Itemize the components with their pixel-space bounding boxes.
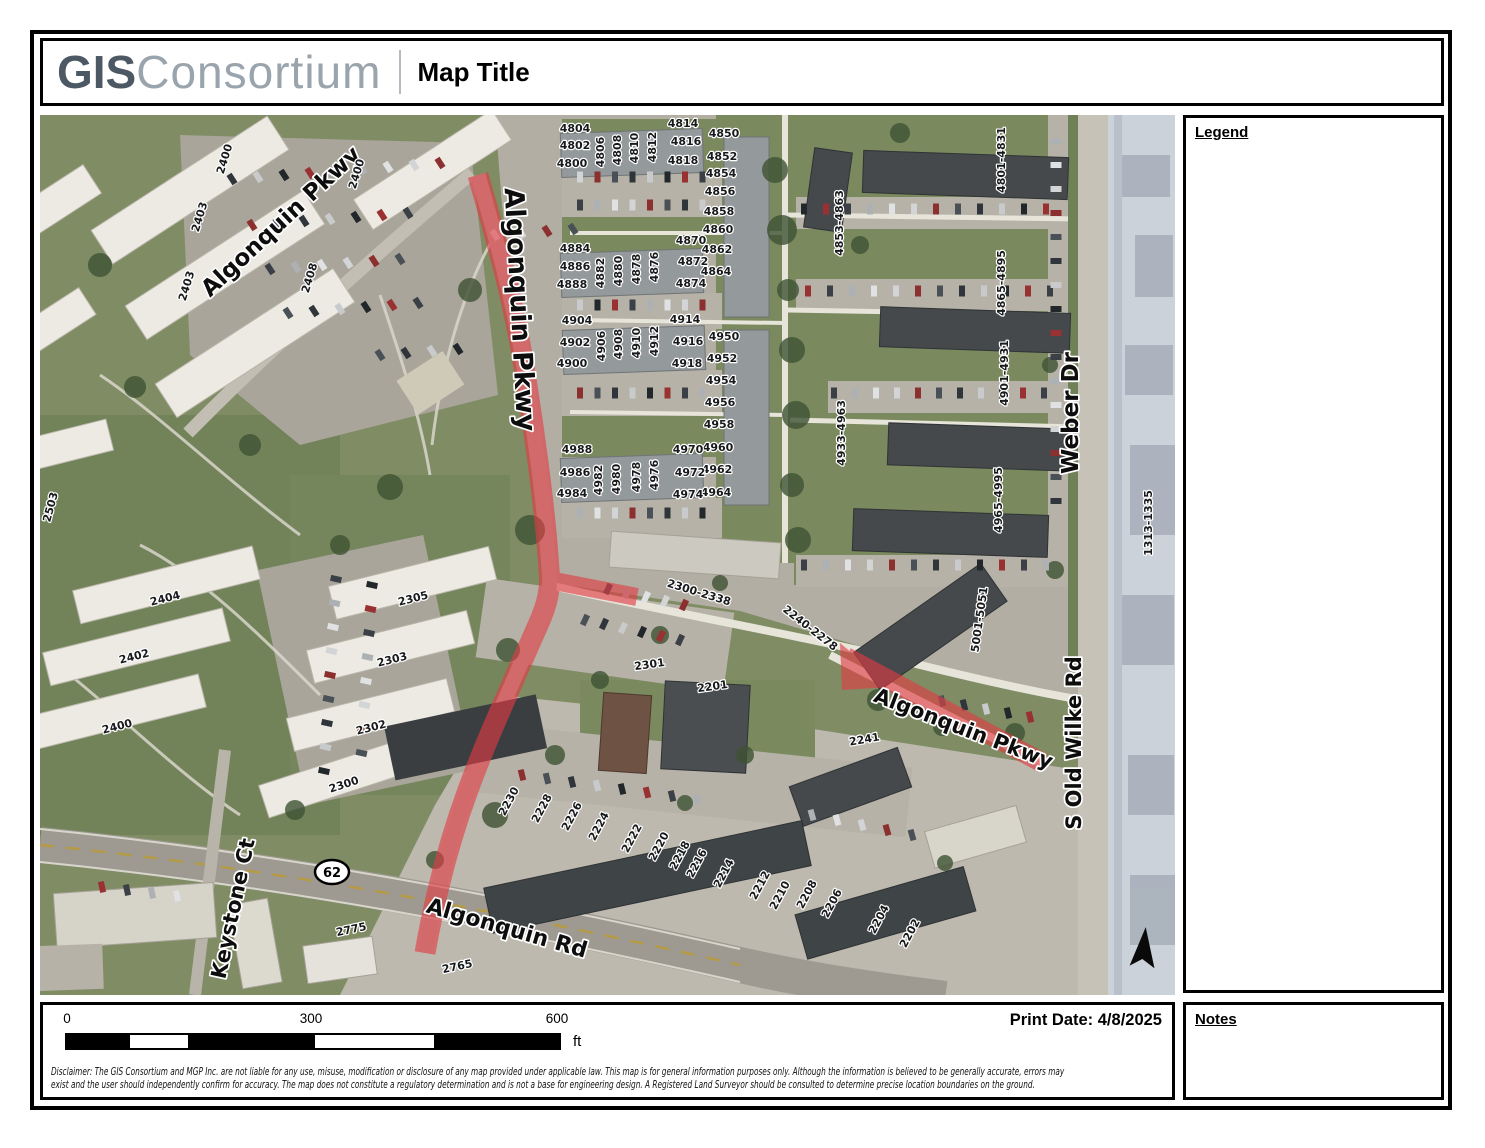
gis-consortium-logo: GISConsortium <box>57 45 381 99</box>
svg-text:4960: 4960 <box>703 441 734 454</box>
page-title: Map Title <box>417 57 529 88</box>
svg-text:4856: 4856 <box>705 185 736 198</box>
route-62-shield: 62 <box>315 860 349 884</box>
scale-bar <box>65 1033 561 1050</box>
svg-text:4988: 4988 <box>562 443 593 456</box>
svg-text:Weber Dr: Weber Dr <box>1058 351 1084 474</box>
svg-text:4962: 4962 <box>702 463 733 476</box>
svg-text:4816: 4816 <box>671 135 702 148</box>
svg-text:4812: 4812 <box>646 132 659 163</box>
scale-tick-300: 300 <box>289 1011 333 1026</box>
svg-text:4956: 4956 <box>705 396 736 409</box>
header-divider <box>399 50 401 94</box>
svg-text:4965-4995: 4965-4995 <box>992 467 1005 533</box>
svg-text:S Old Wilke Rd: S Old Wilke Rd <box>1062 656 1086 830</box>
notes-title: Notes <box>1195 1011 1237 1028</box>
disclaimer-line-1: Disclaimer: The GIS Consortium and MGP I… <box>51 1066 1064 1079</box>
scale-tick-0: 0 <box>45 1011 89 1026</box>
svg-text:4882: 4882 <box>594 258 607 289</box>
legend-title: Legend <box>1195 124 1248 141</box>
svg-text:4878: 4878 <box>630 254 643 285</box>
svg-text:4972: 4972 <box>675 466 706 479</box>
legend-panel: Legend <box>1183 115 1444 993</box>
svg-text:4958: 4958 <box>704 418 735 431</box>
scale-unit: ft <box>573 1033 581 1050</box>
svg-text:4888: 4888 <box>557 278 588 291</box>
svg-text:4978: 4978 <box>630 462 643 493</box>
svg-text:4904: 4904 <box>562 314 593 327</box>
svg-text:4914: 4914 <box>670 313 701 326</box>
svg-text:4984: 4984 <box>557 487 588 500</box>
svg-text:4870: 4870 <box>676 234 707 247</box>
svg-text:4964: 4964 <box>701 486 732 499</box>
svg-text:4801-4831: 4801-4831 <box>995 127 1008 193</box>
svg-text:4952: 4952 <box>707 352 738 365</box>
weber-road <box>1078 115 1108 995</box>
svg-text:4858: 4858 <box>704 205 735 218</box>
svg-text:4818: 4818 <box>668 154 699 167</box>
svg-text:4976: 4976 <box>648 459 661 490</box>
map-viewport: 62 Algonquin PkwyAlgonquin PkwyWeber DrS… <box>40 115 1175 995</box>
svg-text:4950: 4950 <box>709 330 740 343</box>
svg-text:4865-4895: 4865-4895 <box>995 250 1008 316</box>
logo-bold-text: GIS <box>57 45 136 99</box>
svg-text:4876: 4876 <box>648 251 661 282</box>
svg-text:4906: 4906 <box>595 330 608 361</box>
svg-text:4970: 4970 <box>673 443 704 456</box>
svg-text:4886: 4886 <box>560 260 591 273</box>
scale-tick-600: 600 <box>535 1011 579 1026</box>
svg-text:4916: 4916 <box>673 335 704 348</box>
svg-text:4808: 4808 <box>611 135 624 166</box>
svg-text:4910: 4910 <box>630 327 643 358</box>
svg-text:4974: 4974 <box>673 488 704 501</box>
svg-text:4854: 4854 <box>706 167 737 180</box>
svg-text:4800: 4800 <box>557 157 588 170</box>
aerial-map-image: 62 Algonquin PkwyAlgonquin PkwyWeber DrS… <box>40 115 1175 995</box>
header-bar: GISConsortium Map Title <box>40 38 1444 106</box>
svg-text:62: 62 <box>323 866 341 881</box>
svg-text:4954: 4954 <box>706 374 737 387</box>
svg-text:4912: 4912 <box>648 326 661 357</box>
svg-text:4804: 4804 <box>560 122 591 135</box>
svg-text:4874: 4874 <box>676 277 707 290</box>
footer-panel: 0 300 600 ft Print Date: 4/8/2025 Discla… <box>40 1002 1175 1100</box>
notes-panel: Notes <box>1183 1002 1444 1100</box>
svg-text:4860: 4860 <box>703 223 734 236</box>
svg-text:4852: 4852 <box>707 150 738 163</box>
logo-light-text: Consortium <box>136 45 381 99</box>
svg-text:4872: 4872 <box>678 255 709 268</box>
svg-text:4901-4931: 4901-4931 <box>998 340 1011 406</box>
map-sheet: GISConsortium Map Title <box>0 0 1485 1148</box>
disclaimer-line-2: exist and the user should independently … <box>51 1079 1064 1092</box>
svg-text:4918: 4918 <box>672 357 703 370</box>
svg-text:1313-1335: 1313-1335 <box>1142 490 1155 556</box>
svg-text:4933-4963: 4933-4963 <box>835 400 848 466</box>
svg-text:4980: 4980 <box>610 463 623 494</box>
brown-roof-building <box>598 692 651 773</box>
svg-text:4850: 4850 <box>709 127 740 140</box>
svg-text:4900: 4900 <box>557 357 588 370</box>
svg-text:4982: 4982 <box>592 465 605 496</box>
print-date: Print Date: 4/8/2025 <box>1010 1011 1162 1030</box>
svg-text:4810: 4810 <box>628 132 641 163</box>
svg-text:4902: 4902 <box>560 336 591 349</box>
svg-text:4884: 4884 <box>560 242 591 255</box>
svg-text:4908: 4908 <box>612 329 625 360</box>
svg-text:4986: 4986 <box>560 466 591 479</box>
svg-text:4853-4863: 4853-4863 <box>833 190 846 256</box>
svg-text:4814: 4814 <box>668 117 699 130</box>
svg-text:4802: 4802 <box>560 139 591 152</box>
svg-text:4806: 4806 <box>594 136 607 167</box>
svg-text:4880: 4880 <box>612 255 625 286</box>
